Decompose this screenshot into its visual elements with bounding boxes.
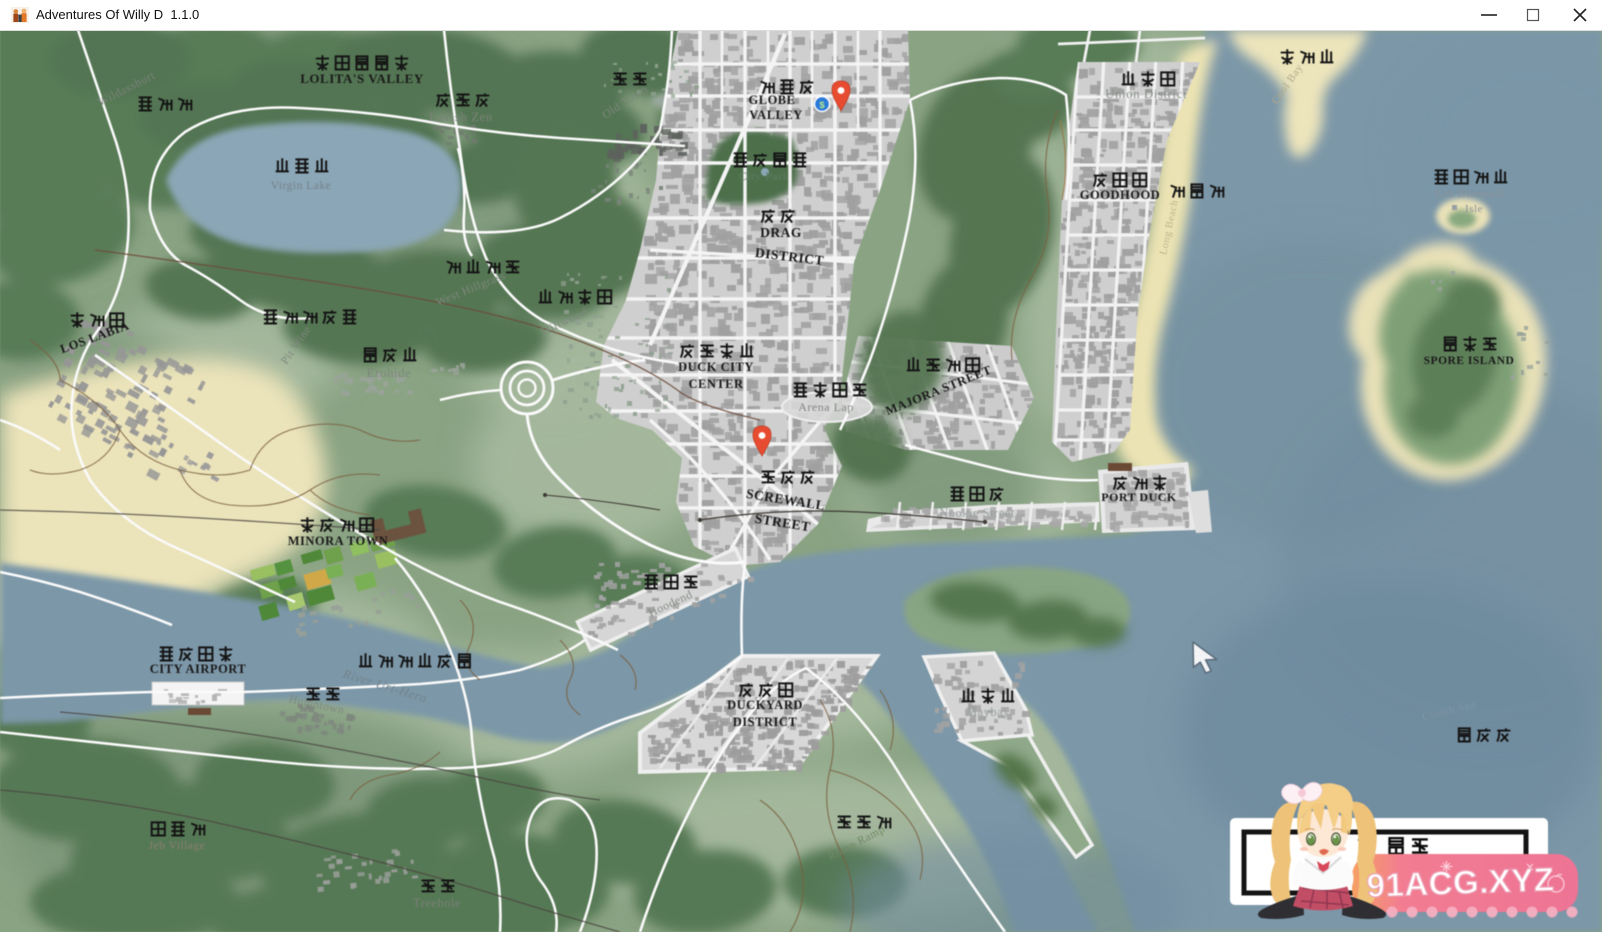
svg-text:DISTRICT: DISTRICT bbox=[733, 715, 798, 729]
svg-text:GOODHOOD: GOODHOOD bbox=[1080, 188, 1160, 202]
svg-text:GLOBE: GLOBE bbox=[749, 93, 796, 107]
svg-text:Union District: Union District bbox=[1105, 86, 1187, 101]
svg-text:Jeb Village: Jeb Village bbox=[149, 840, 206, 852]
svg-text:VALLEY: VALLEY bbox=[749, 108, 802, 122]
svg-text:Maybay: Maybay bbox=[966, 705, 1010, 719]
svg-text:Virgin Lake: Virgin Lake bbox=[271, 180, 331, 192]
svg-text:Nookie Street: Nookie Street bbox=[939, 506, 1015, 520]
svg-text:DUCK CITY: DUCK CITY bbox=[678, 360, 754, 374]
svg-text:Erohide: Erohide bbox=[367, 365, 412, 380]
svg-text:PORT DUCK: PORT DUCK bbox=[1101, 490, 1177, 504]
svg-text:CENTER: CENTER bbox=[688, 377, 744, 391]
svg-text:Isle: Isle bbox=[1465, 203, 1483, 215]
svg-text:SPORE ISLAND: SPORE ISLAND bbox=[1424, 355, 1515, 367]
svg-text:Treehole: Treehole bbox=[413, 896, 461, 910]
svg-text:Les Biannual: Les Biannual bbox=[1435, 186, 1505, 200]
svg-text:MINORA TOWN: MINORA TOWN bbox=[288, 534, 389, 548]
svg-text:Lavish Zen: Lavish Zen bbox=[429, 109, 493, 124]
svg-text:CITY AIRPORT: CITY AIRPORT bbox=[150, 662, 247, 676]
svg-text:DUCKYARD: DUCKYARD bbox=[727, 698, 803, 712]
svg-text:LOLITA'S VALLEY: LOLITA'S VALLEY bbox=[300, 71, 424, 86]
svg-text:$: $ bbox=[819, 100, 825, 111]
svg-text:DRAG: DRAG bbox=[760, 225, 802, 240]
svg-text:Arena Lap: Arena Lap bbox=[798, 400, 853, 414]
svg-text:91ACG.XYZ: 91ACG.XYZ bbox=[1366, 860, 1555, 904]
svg-text:City Park: City Park bbox=[739, 169, 789, 183]
